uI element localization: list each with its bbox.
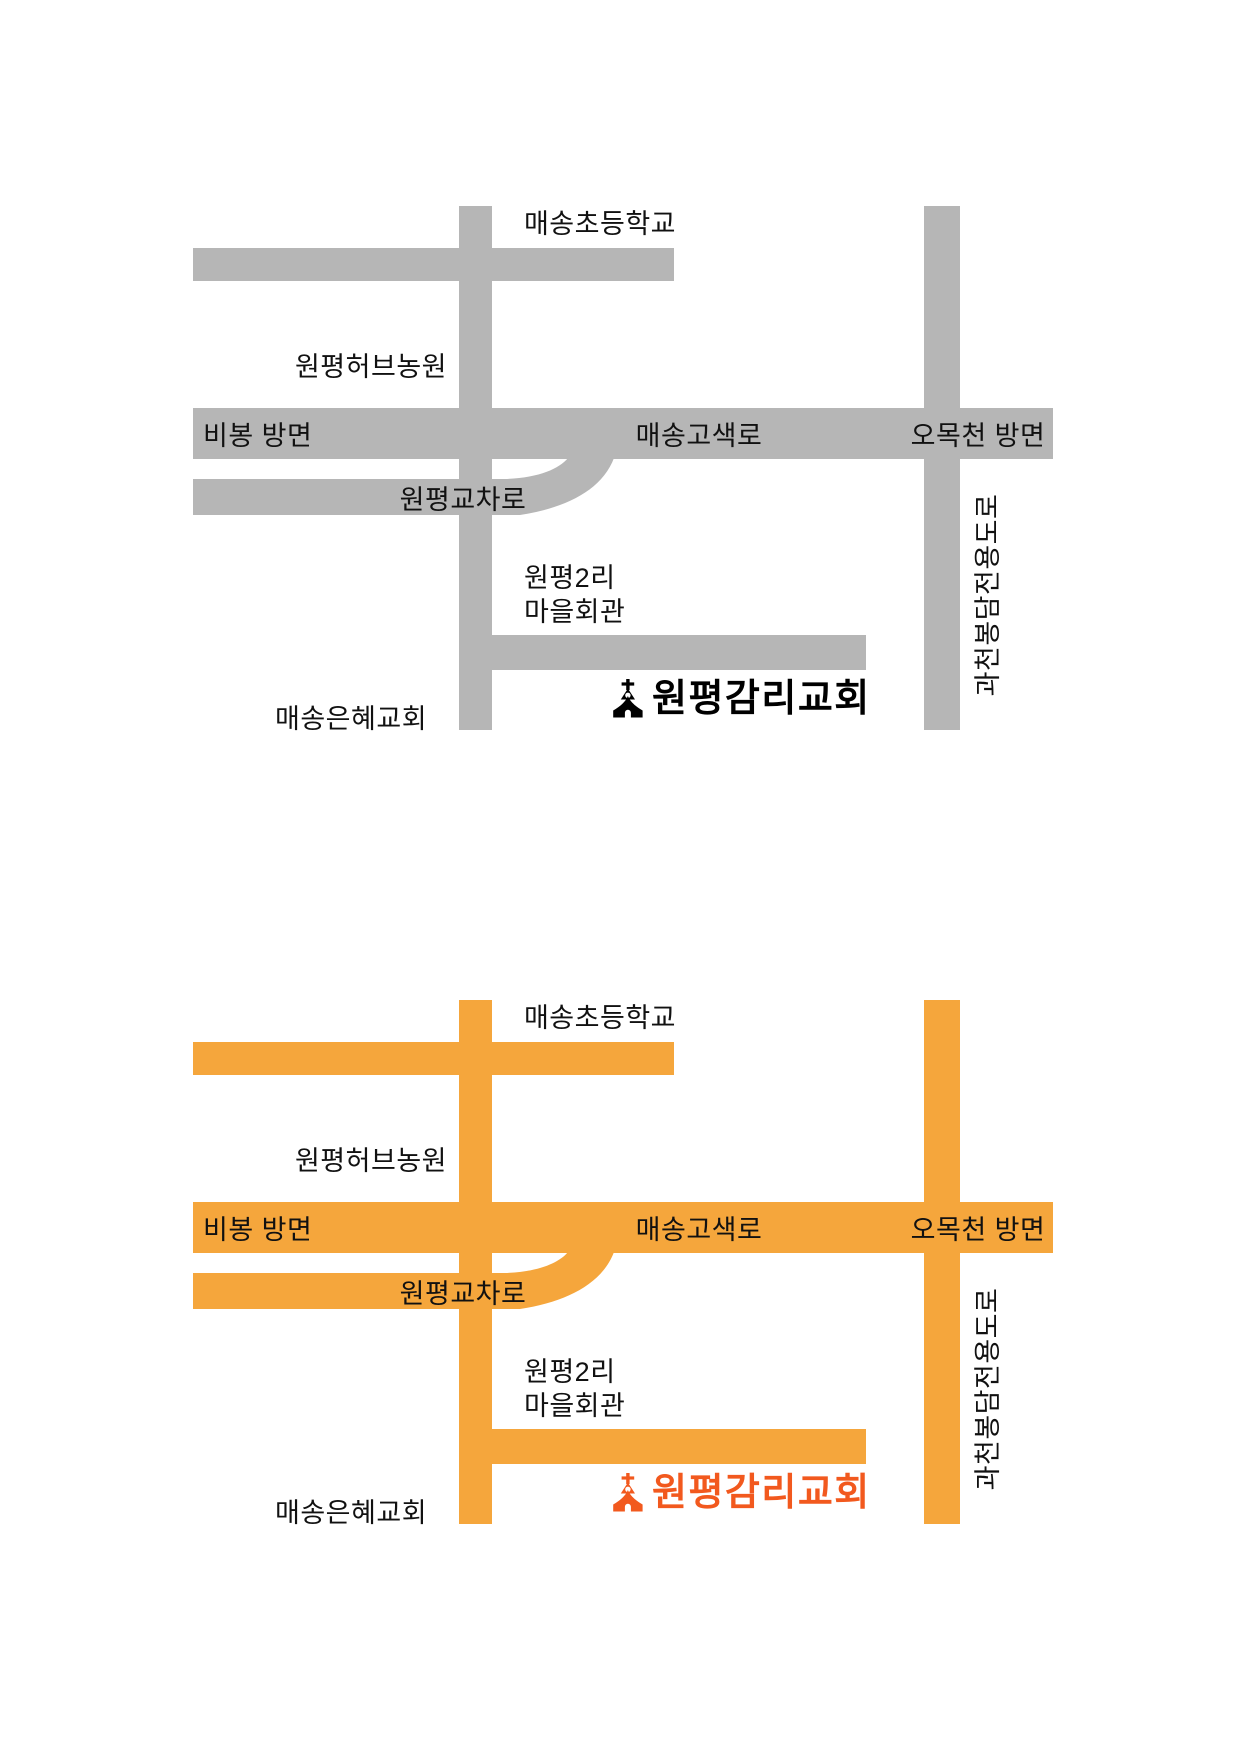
church-icon-cross-horizontal <box>622 1476 635 1479</box>
road-top-horizontal <box>193 248 674 281</box>
road-vertical-right <box>924 1000 960 1524</box>
label-expressway-vertical: 과천봉담전용도로 <box>973 1288 1003 1491</box>
label-school: 매송초등학교 <box>524 1003 676 1033</box>
label-bibong-direction: 비봉 방면 <box>203 421 312 451</box>
road-church-access <box>459 635 866 670</box>
label-village-hall-line2: 마을회관 <box>524 597 625 627</box>
label-village-hall-line2: 마을회관 <box>524 1391 625 1421</box>
label-omokcheon-direction: 오목천 방면 <box>911 421 1046 451</box>
church-icon-cross-horizontal <box>622 682 635 685</box>
road-vertical-right <box>924 206 960 730</box>
map-orange: 매송초등학교 원평허브농원 비봉 방면 매송고색로 오목천 방면 원평교차로 원… <box>193 1000 1053 1528</box>
direction-maps-page: 매송초등학교 원평허브농원 비봉 방면 매송고색로 오목천 방면 원평교차로 원… <box>0 0 1240 1754</box>
church-icon <box>613 679 642 718</box>
label-village-hall-line1: 원평2리 <box>524 1357 616 1387</box>
road-church-access <box>459 1429 866 1464</box>
label-omokcheon-direction: 오목천 방면 <box>911 1215 1046 1245</box>
label-herb-farm: 원평허브농원 <box>295 1146 447 1176</box>
maps-canvas: 매송초등학교 원평허브농원 비봉 방면 매송고색로 오목천 방면 원평교차로 원… <box>0 0 1240 1754</box>
label-gosaek-road: 매송고색로 <box>636 1215 763 1245</box>
label-gosaek-road: 매송고색로 <box>636 421 763 451</box>
label-church-name: 원평감리교회 <box>652 1472 871 1514</box>
map-gray-church-marker: 원평감리교회 <box>613 678 871 720</box>
label-intersection: 원평교차로 <box>400 1279 527 1309</box>
label-intersection: 원평교차로 <box>400 485 527 515</box>
label-grace-church: 매송은혜교회 <box>275 1498 427 1528</box>
label-grace-church: 매송은혜교회 <box>275 704 427 734</box>
label-bibong-direction: 비봉 방면 <box>203 1215 312 1245</box>
label-village-hall-line1: 원평2리 <box>524 563 616 593</box>
map-gray: 매송초등학교 원평허브농원 비봉 방면 매송고색로 오목천 방면 원평교차로 원… <box>193 206 1053 734</box>
label-church-name: 원평감리교회 <box>652 678 871 720</box>
label-herb-farm: 원평허브농원 <box>295 352 447 382</box>
map-orange-roads <box>193 1000 1053 1524</box>
church-icon <box>613 1473 642 1512</box>
label-school: 매송초등학교 <box>524 209 676 239</box>
road-top-horizontal <box>193 1042 674 1075</box>
church-icon-door <box>625 1504 631 1512</box>
label-expressway-vertical: 과천봉담전용도로 <box>973 494 1003 697</box>
map-orange-church-marker: 원평감리교회 <box>613 1472 871 1514</box>
map-gray-roads <box>193 206 1053 730</box>
church-icon-door <box>625 710 631 718</box>
